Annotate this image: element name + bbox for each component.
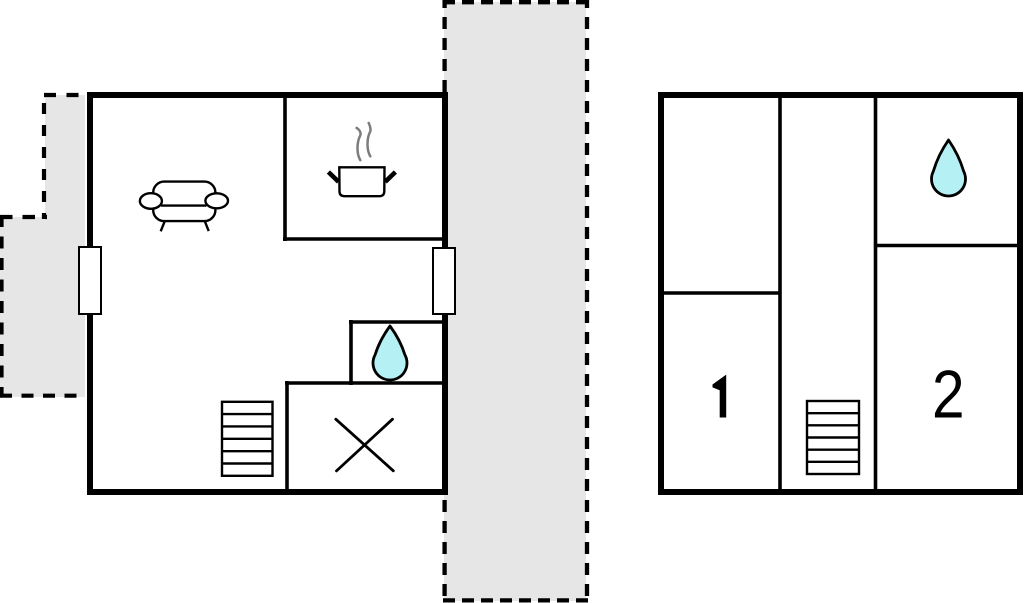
svg-text:2: 2 xyxy=(932,357,965,432)
